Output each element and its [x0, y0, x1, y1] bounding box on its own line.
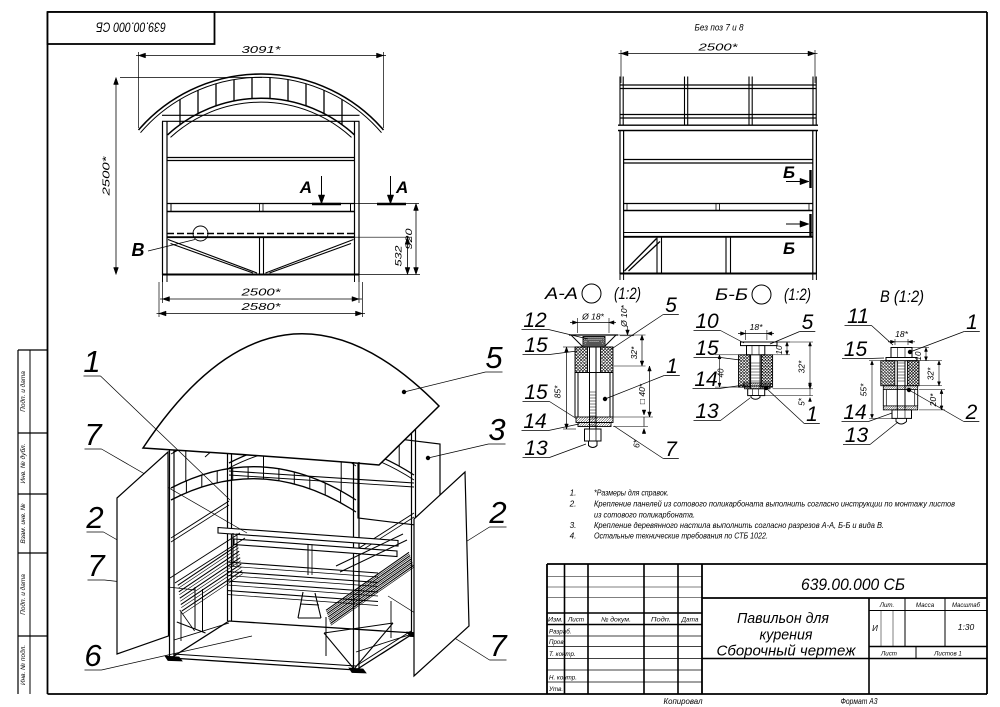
svg-text:А: А: [395, 178, 408, 197]
svg-text:Формат А3: Формат А3: [841, 697, 878, 706]
svg-text:11: 11: [847, 305, 869, 328]
svg-text:Остальные технические требован: Остальные технические требования по СТБ …: [594, 532, 768, 541]
svg-text:Пров.: Пров.: [549, 639, 565, 646]
svg-text:Подп.: Подп.: [651, 617, 671, 624]
svg-text:Подп. и дата: Подп. и дата: [19, 371, 27, 412]
svg-text:И: И: [872, 624, 878, 633]
svg-text:6: 6: [84, 638, 102, 673]
svg-text:15: 15: [524, 381, 548, 404]
svg-text:32*: 32*: [629, 346, 639, 359]
svg-text:Взам. инв. №: Взам. инв. №: [20, 503, 27, 543]
svg-text:15: 15: [844, 338, 868, 361]
svg-text:3.: 3.: [570, 521, 577, 530]
svg-text:7: 7: [84, 417, 103, 452]
svg-text:1: 1: [666, 355, 678, 378]
svg-text:Дата: Дата: [680, 617, 699, 624]
svg-text:32*: 32*: [797, 360, 807, 373]
svg-text:13: 13: [845, 424, 869, 447]
svg-text:7: 7: [489, 628, 508, 663]
svg-text:2580*: 2580*: [240, 301, 282, 313]
svg-text:1.: 1.: [570, 489, 577, 498]
svg-text:532: 532: [394, 245, 405, 267]
svg-text:7: 7: [87, 548, 106, 583]
svg-text:А: А: [299, 178, 312, 197]
svg-text:2: 2: [965, 401, 978, 424]
svg-text:Н. контр.: Н. контр.: [549, 675, 577, 682]
svg-text:из сотового поликарбоната.: из сотового поликарбоната.: [594, 511, 695, 520]
svg-text:Копировал: Копировал: [664, 697, 703, 706]
svg-text:2500*: 2500*: [240, 287, 282, 299]
svg-text:1: 1: [966, 311, 978, 334]
svg-text:2.: 2.: [569, 500, 577, 509]
svg-text:2: 2: [488, 495, 506, 530]
svg-text:14: 14: [523, 410, 546, 433]
svg-text:10: 10: [775, 345, 784, 354]
svg-text:3091*: 3091*: [242, 44, 282, 56]
svg-text:10: 10: [914, 351, 923, 360]
svg-text:Б: Б: [783, 163, 795, 182]
svg-text:Подп. и дата: Подп. и дата: [19, 574, 27, 615]
svg-text:85*: 85*: [553, 385, 563, 398]
svg-text:1: 1: [806, 403, 818, 426]
svg-text:920: 920: [404, 228, 415, 250]
svg-text:Ø 10*: Ø 10*: [619, 304, 629, 327]
svg-text:Крепление панелей из сотового: Крепление панелей из сотового поликарбон…: [594, 500, 956, 509]
svg-text:40: 40: [717, 368, 726, 377]
svg-text:В: В: [132, 240, 145, 260]
svg-text:Б: Б: [783, 239, 795, 258]
svg-text:Инв. № дубл.: Инв. № дубл.: [19, 443, 27, 483]
svg-text:2500*: 2500*: [101, 155, 113, 197]
svg-text:(1:2): (1:2): [784, 285, 811, 304]
svg-text:Б-Б: Б-Б: [715, 285, 748, 304]
svg-text:18*: 18*: [750, 322, 763, 332]
svg-text:Павильон для: Павильон для: [737, 610, 829, 627]
svg-text:курения: курения: [760, 627, 813, 644]
svg-text:639.00.000 СБ: 639.00.000 СБ: [96, 20, 166, 35]
svg-text:32*: 32*: [926, 367, 936, 380]
svg-text:(1:2): (1:2): [614, 284, 641, 303]
svg-text:18*: 18*: [895, 329, 908, 339]
svg-text:№ докум.: № докум.: [601, 617, 631, 624]
svg-text:4.: 4.: [570, 532, 577, 541]
svg-text:Разраб.: Разраб.: [549, 629, 571, 636]
svg-text:20*: 20*: [928, 393, 938, 407]
svg-text:1:30: 1:30: [958, 622, 975, 632]
svg-text:14: 14: [694, 368, 717, 391]
svg-text:Т. контр.: Т. контр.: [549, 651, 576, 658]
svg-text:5*: 5*: [798, 397, 807, 405]
svg-text:Масштаб: Масштаб: [952, 602, 980, 609]
svg-text:А-А: А-А: [544, 284, 578, 303]
svg-text:15: 15: [695, 337, 719, 360]
svg-text:Лит.: Лит.: [879, 602, 895, 609]
svg-text:□ 40*: □ 40*: [637, 383, 647, 404]
svg-text:Лист: Лист: [567, 617, 584, 624]
svg-text:Инв. № подл.: Инв. № подл.: [19, 645, 27, 686]
svg-text:*Размеры для справок.: *Размеры для справок.: [594, 489, 669, 498]
svg-text:Сборочный чертеж: Сборочный чертеж: [717, 643, 857, 660]
svg-text:В (1:2): В (1:2): [880, 287, 924, 306]
svg-text:2: 2: [85, 500, 103, 535]
svg-text:5: 5: [665, 294, 677, 317]
svg-text:14: 14: [843, 401, 866, 424]
svg-text:13: 13: [524, 437, 548, 460]
svg-text:1: 1: [83, 344, 100, 379]
svg-text:3: 3: [488, 412, 505, 447]
svg-text:Листов 1: Листов 1: [933, 651, 962, 658]
svg-text:7: 7: [665, 438, 678, 461]
svg-text:2500*: 2500*: [697, 42, 739, 54]
svg-text:5: 5: [802, 311, 814, 334]
svg-text:Ø 18*: Ø 18*: [581, 312, 604, 322]
svg-text:Масса: Масса: [916, 602, 935, 609]
svg-text:Лист: Лист: [880, 651, 897, 658]
svg-text:13: 13: [695, 400, 719, 423]
svg-text:Утв.: Утв.: [548, 686, 563, 693]
svg-text:55*: 55*: [859, 383, 869, 396]
svg-text:Изм.: Изм.: [548, 617, 563, 624]
svg-text:12: 12: [523, 309, 547, 332]
svg-text:10: 10: [695, 310, 719, 333]
svg-text:Без поз 7 и 8: Без поз 7 и 8: [695, 23, 744, 33]
svg-text:15: 15: [524, 334, 548, 357]
svg-text:639.00.000 СБ: 639.00.000 СБ: [801, 575, 905, 594]
svg-text:Крепление деревянного настила: Крепление деревянного настила выполнить …: [594, 521, 884, 530]
svg-text:5: 5: [485, 340, 503, 375]
